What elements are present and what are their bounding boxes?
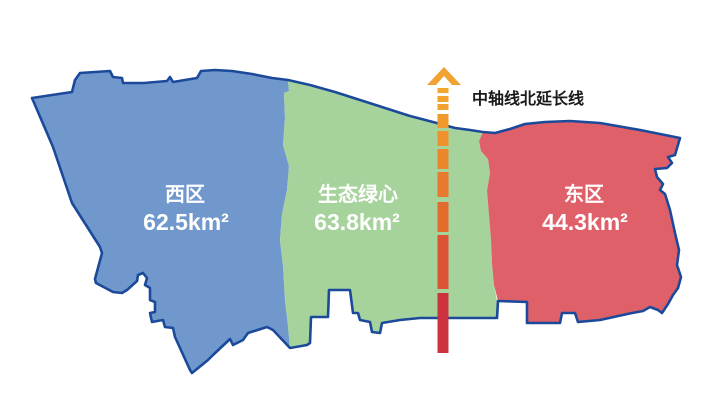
axis-dash (438, 293, 449, 353)
region-green-heart-name: 生态绿心 (318, 182, 398, 206)
axis-dash (438, 88, 449, 93)
axis-dash (438, 114, 449, 128)
axis-dash (438, 149, 449, 169)
axis-label: 中轴线北延长线 (472, 89, 584, 108)
axis-dash (438, 172, 449, 197)
region-east-area: 44.3km² (542, 209, 628, 235)
region-green-heart-area: 63.8km² (314, 209, 400, 235)
region-east-name: 东区 (564, 182, 604, 206)
axis-dash (438, 104, 449, 110)
region-west-area: 62.5km² (143, 209, 229, 235)
map-canvas: 中轴线北延长线 西区 62.5km² 生态绿心 63.8km² 东区 44.3k… (0, 0, 718, 407)
axis-dash (438, 235, 449, 289)
axis-dashed-line (438, 88, 449, 353)
axis-dash (438, 202, 449, 232)
axis-dash (438, 131, 449, 146)
district-map-infographic: 中轴线北延长线 西区 62.5km² 生态绿心 63.8km² 东区 44.3k… (0, 0, 718, 407)
north-arrow-icon (427, 67, 461, 85)
region-green-heart-label: 生态绿心 63.8km² (314, 182, 400, 235)
region-west-name: 西区 (165, 184, 205, 206)
axis-dash (438, 96, 449, 102)
